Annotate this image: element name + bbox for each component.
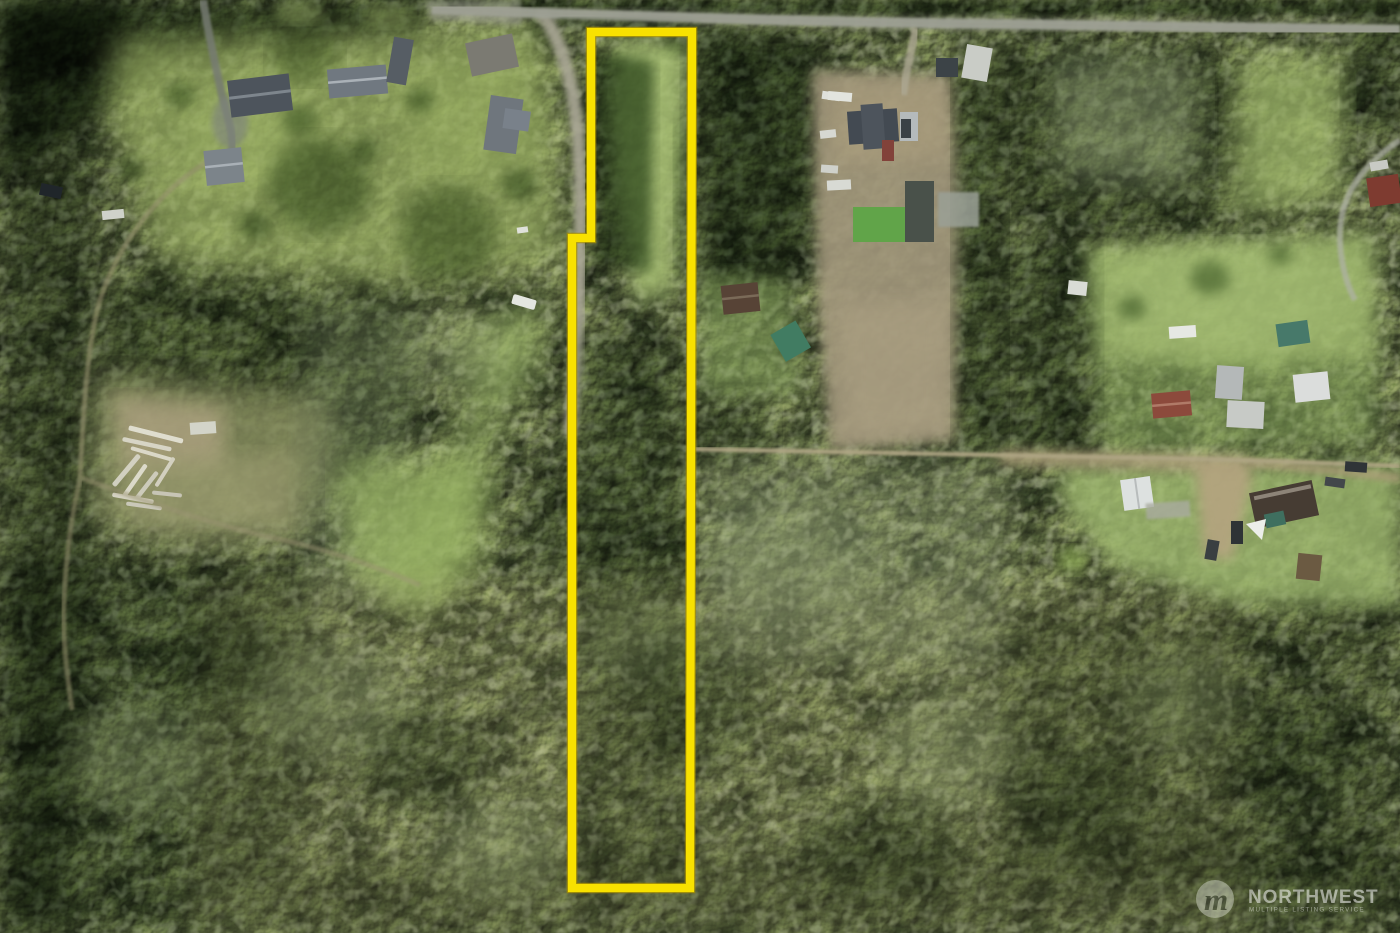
svg-text:NORTHWEST: NORTHWEST	[1248, 887, 1379, 908]
svg-text:MULTIPLE LISTING SERVICE: MULTIPLE LISTING SERVICE	[1249, 907, 1365, 914]
svg-text:m: m	[1204, 882, 1228, 917]
